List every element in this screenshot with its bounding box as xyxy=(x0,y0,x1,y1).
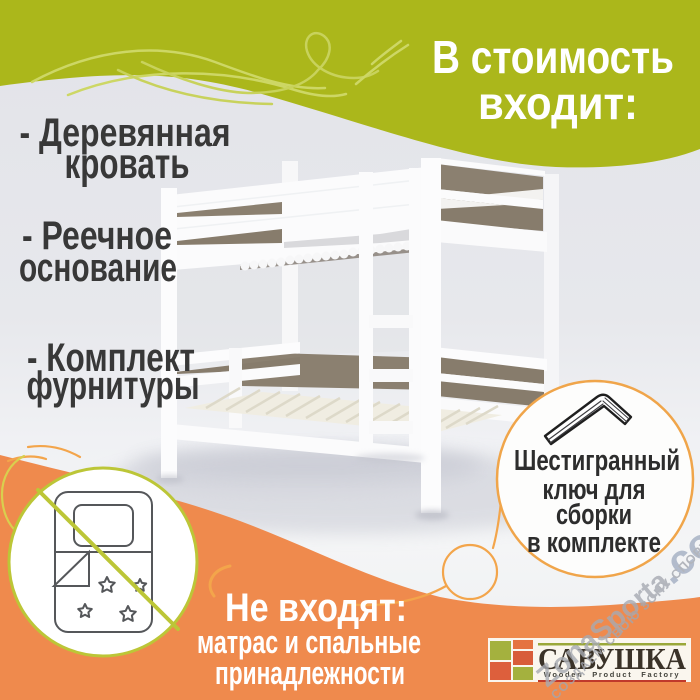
svg-text:кровать: кровать xyxy=(65,140,190,188)
svg-text:принадлежности: принадлежности xyxy=(215,655,405,691)
svg-text:В стоимость: В стоимость xyxy=(432,31,674,83)
svg-text:Шестигранный: Шестигранный xyxy=(514,445,680,477)
svg-text:в комплекте: в комплекте xyxy=(527,527,661,559)
svg-text:фурнитуры: фурнитуры xyxy=(27,364,200,408)
svg-text:входит:: входит: xyxy=(478,77,638,129)
svg-text:основание: основание xyxy=(19,246,177,290)
